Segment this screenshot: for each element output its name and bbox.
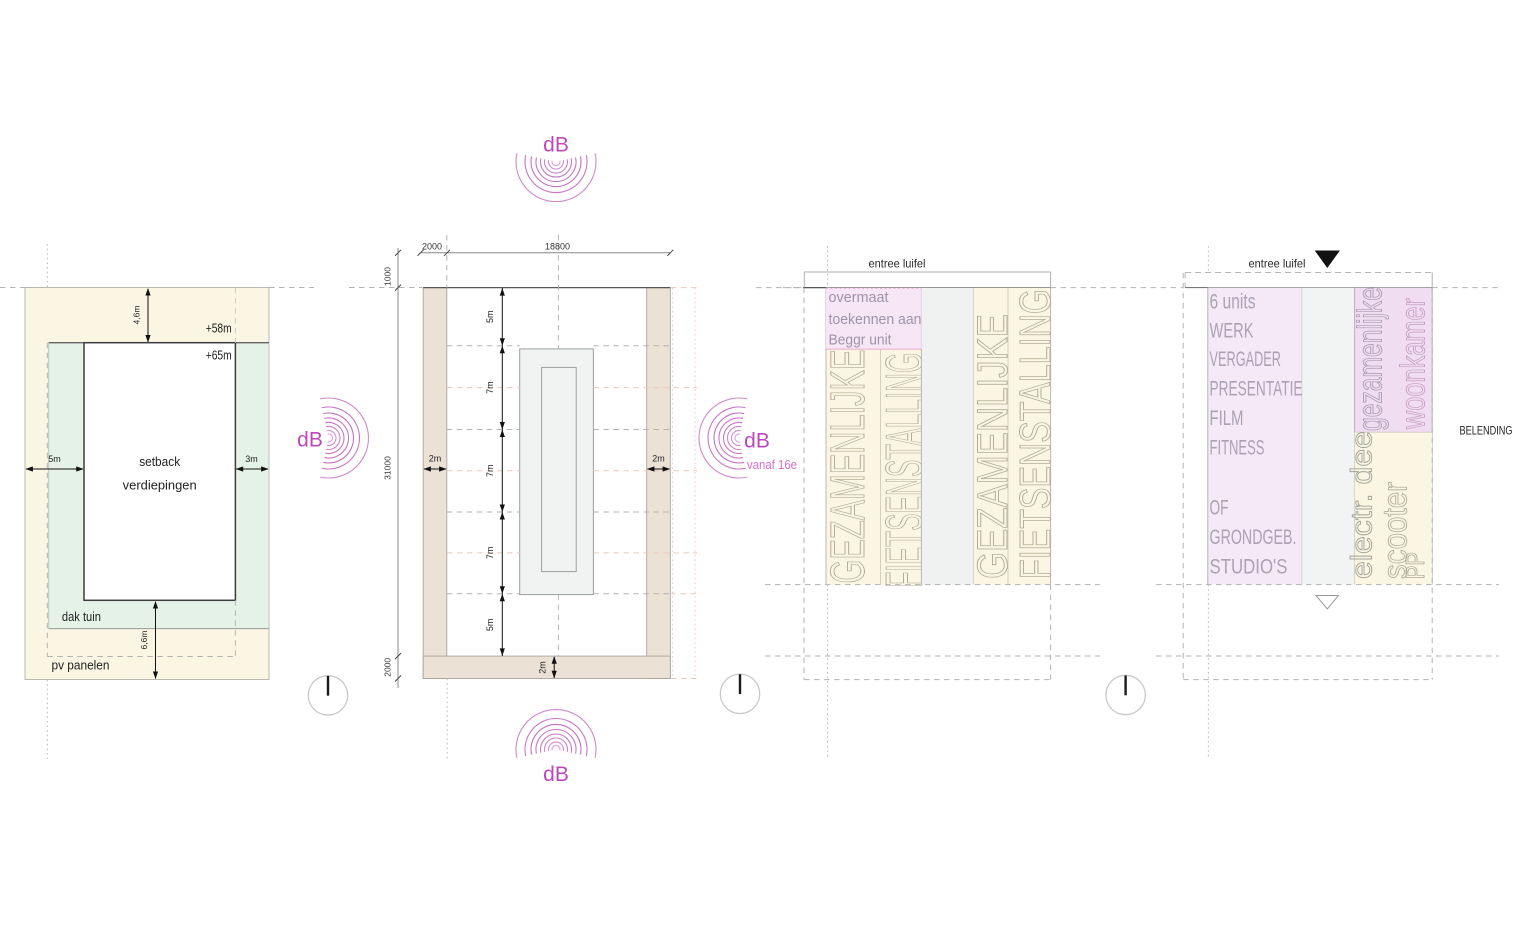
- svg-text:VERGADER: VERGADER: [1210, 348, 1282, 371]
- svg-text:toekennen aan: toekennen aan: [829, 311, 922, 328]
- svg-text:dB: dB: [297, 429, 323, 452]
- svg-text:entree luifel: entree luifel: [869, 257, 926, 271]
- svg-text:7m: 7m: [485, 547, 495, 560]
- svg-text:2m: 2m: [652, 454, 665, 464]
- svg-text:FILM: FILM: [1210, 407, 1244, 430]
- svg-text:woonkamer: woonkamer: [1395, 298, 1433, 430]
- svg-text:WERK: WERK: [1210, 319, 1254, 342]
- svg-text:5m: 5m: [48, 454, 61, 464]
- svg-text:BELENDING: BELENDING: [1460, 426, 1513, 438]
- svg-text:2000: 2000: [422, 242, 442, 252]
- svg-text:6 units: 6 units: [1210, 291, 1256, 314]
- svg-text:entree luifel: entree luifel: [1249, 257, 1306, 271]
- svg-text:PRESENTATIE: PRESENTATIE: [1210, 377, 1303, 400]
- svg-text:pv panelen: pv panelen: [52, 659, 110, 673]
- svg-text:gezamenlijke: gezamenlijke: [1352, 287, 1390, 431]
- svg-text:FITNESS: FITNESS: [1210, 437, 1265, 460]
- svg-text:verdiepingen: verdiepingen: [123, 479, 197, 493]
- svg-text:18800: 18800: [545, 242, 570, 252]
- svg-text:GEZAMENLIJKE: GEZAMENLIJKE: [822, 350, 875, 584]
- svg-text:1000: 1000: [383, 267, 393, 286]
- svg-text:Beggr unit: Beggr unit: [829, 332, 893, 349]
- svg-text:31000: 31000: [383, 456, 393, 480]
- svg-text:3m: 3m: [245, 454, 258, 464]
- svg-text:2000: 2000: [383, 658, 393, 677]
- svg-text:GRONDGEB.: GRONDGEB.: [1210, 526, 1297, 549]
- svg-text:overmaat: overmaat: [829, 289, 890, 306]
- svg-text:+58m: +58m: [206, 322, 232, 336]
- svg-text:GEZAMENLIJKE: GEZAMENLIJKE: [969, 314, 1017, 579]
- svg-text:5m: 5m: [485, 310, 495, 323]
- svg-text:electr. dee: electr. dee: [1346, 431, 1379, 579]
- svg-text:setback: setback: [139, 455, 181, 469]
- svg-text:5m: 5m: [485, 619, 495, 632]
- svg-text:7m: 7m: [485, 381, 495, 394]
- svg-text:dak tuin: dak tuin: [62, 610, 101, 624]
- svg-text:dB: dB: [543, 763, 569, 786]
- svg-text:STUDIO'S: STUDIO'S: [1210, 555, 1288, 578]
- svg-text:PP: PP: [1400, 552, 1430, 579]
- svg-text:2m: 2m: [538, 661, 548, 674]
- svg-text:7m: 7m: [485, 464, 495, 477]
- svg-text:4,6m: 4,6m: [132, 306, 142, 325]
- svg-text:+65m: +65m: [206, 349, 232, 363]
- svg-text:OF: OF: [1210, 496, 1229, 519]
- svg-text:6,6m: 6,6m: [139, 631, 149, 650]
- svg-text:2m: 2m: [429, 454, 442, 464]
- svg-text:dB: dB: [744, 430, 770, 453]
- svg-text:FIETSENSTALLING: FIETSENSTALLING: [1011, 289, 1060, 579]
- svg-text:vanaf 16e: vanaf 16e: [747, 457, 797, 472]
- svg-text:dB: dB: [543, 134, 569, 157]
